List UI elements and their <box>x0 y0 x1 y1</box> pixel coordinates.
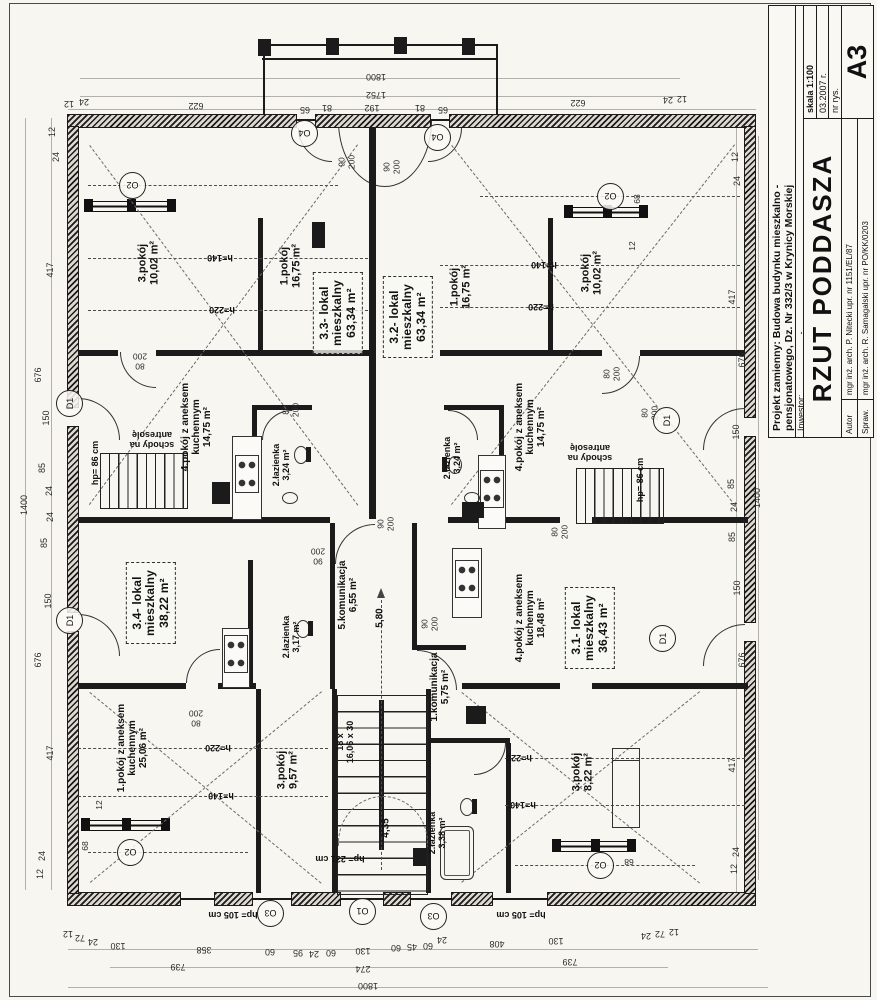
wall-segment <box>256 689 261 893</box>
dim-label: 676 <box>737 352 747 367</box>
window-marker-O2: O2 <box>597 183 624 210</box>
stair-direction-arrow <box>377 588 385 598</box>
room-label: 3.pokój 10,02 m² <box>580 251 605 295</box>
height-note: h=140 <box>510 800 536 810</box>
dim-label: 150 <box>732 580 742 595</box>
wall-segment <box>369 127 376 519</box>
sill-note: hp= 231 cm <box>315 854 364 864</box>
dim-label: 24 <box>437 935 447 945</box>
height-note: h=220 <box>209 305 235 315</box>
door-marker-D1: D1 <box>653 407 680 434</box>
dim-label: 676 <box>33 652 43 667</box>
wall-segment <box>78 350 118 356</box>
dim-label: 85 <box>39 538 49 548</box>
window-cap <box>81 818 90 831</box>
vent-stack <box>212 482 230 504</box>
drawing-meta: skala 1:100 03.2007 r. nr rys. <box>804 6 841 118</box>
room-label: 2.łazienka 3,24 m² <box>271 444 291 487</box>
dim-label: 417 <box>727 757 737 772</box>
dim-label: 85 <box>727 532 737 542</box>
hatched-wall <box>68 632 78 893</box>
window-marker-O4: O4 <box>424 124 451 151</box>
checker-row: Spraw. mgr inż. arch. R. Samagalski upr.… <box>858 119 873 437</box>
dashed-line <box>78 796 328 797</box>
window-cap <box>167 199 176 212</box>
drawing-element: Projekt zamienny: Budowa budynku mieszka… <box>771 12 783 431</box>
dim-label: 1800 <box>366 72 386 82</box>
sill-note: hp= 86 cm <box>90 441 100 485</box>
dim-label: 622 <box>570 98 585 108</box>
height-note: h=220 <box>205 743 231 753</box>
dim-label: 1800 <box>358 981 378 991</box>
door-swing-arc <box>335 524 375 564</box>
hatched-wall <box>68 115 296 127</box>
dim-label: 12 <box>729 864 739 874</box>
dim-label: 739 <box>562 957 577 967</box>
drawing-element: pensjonatowego, Dz. Nr 332/3 w Krynicy M… <box>783 12 795 431</box>
bed-icon <box>612 748 640 828</box>
dim-label: 12 <box>64 99 74 109</box>
room-label: 1.pokój 16,75 m² <box>449 265 474 309</box>
dim-label: 81 <box>322 103 332 113</box>
dim-label: 274 <box>355 964 370 974</box>
dim-label: 24 <box>88 937 98 947</box>
cooktop-icon <box>455 560 479 598</box>
wall-segment <box>394 37 407 54</box>
door-size: 80 200 <box>602 367 621 381</box>
door-swing-arc <box>78 614 120 656</box>
apt-3-1-label: 3.1- lokal mieszkalny 36,43 m² <box>565 587 615 669</box>
date-label: 03.2007 r. <box>817 6 830 118</box>
credits-row: Autor mgr inż. arch. P. Nitecki upr. nr … <box>842 6 873 437</box>
author-row: Autor mgr inż. arch. P. Nitecki upr. nr … <box>842 119 858 437</box>
dimension-line <box>68 987 768 988</box>
scale-label: skala 1:100 <box>804 6 817 118</box>
dim-label: 24 <box>45 512 55 522</box>
window-cap <box>627 839 636 852</box>
window-marker-O3: O3 <box>420 903 447 930</box>
dim-label: 24 <box>309 949 319 959</box>
stair-note: 18 x 16,06 x 30 <box>335 721 355 764</box>
door-size: 90 200 <box>420 617 439 631</box>
dim-label: 68 <box>81 841 91 850</box>
mezzanine-stairs-label: schody na antresolę <box>568 443 613 463</box>
project-description: Projekt zamienny: Budowa budynku mieszka… <box>769 6 795 437</box>
door-marker-D1: D1 <box>56 390 83 417</box>
hatched-wall <box>68 893 180 905</box>
dim-label: 417 <box>45 262 55 277</box>
room-label: 1.komunikacja 5,75 m² <box>429 653 451 722</box>
wall-segment <box>258 218 263 350</box>
sill-note: hp= 105 cm <box>208 910 257 920</box>
dim-label: 24 <box>663 95 673 105</box>
dim-label: 130 <box>110 941 125 951</box>
cooktop-icon <box>224 635 248 673</box>
hatched-wall <box>452 893 492 905</box>
apt-3-3-label: 3.3- lokal mieszkalny 63,34 m² <box>313 272 363 354</box>
drawing-number-label: nr rys. <box>829 6 841 118</box>
wall-segment <box>78 517 330 523</box>
title-block: Projekt zamienny: Budowa budynku mieszka… <box>768 5 874 438</box>
dim-label: 60 <box>326 948 336 958</box>
height-note: h=220 <box>528 302 554 312</box>
hatched-wall <box>292 893 340 905</box>
dim-label: 358 <box>196 945 211 955</box>
dimension-line <box>51 118 52 890</box>
dim-label: 676 <box>737 652 747 667</box>
window-cap <box>122 818 131 831</box>
dim-label: 150 <box>731 424 741 439</box>
dim-label: 12 <box>95 800 105 809</box>
wall-segment <box>472 799 477 814</box>
title-row: RZUT PODDASZA skala 1:100 03.2007 r. nr … <box>804 6 842 437</box>
hatched-wall <box>68 127 78 407</box>
line <box>262 58 498 60</box>
dim-label: 12 <box>669 927 679 937</box>
dim-label: 130 <box>355 946 370 956</box>
dim-label: 12 <box>730 152 740 162</box>
door-swing-arc <box>186 649 220 683</box>
vent-stack <box>466 706 486 724</box>
dim-label: 85 <box>726 479 736 489</box>
door-swing-arc <box>78 398 120 440</box>
hatched-wall <box>215 893 252 905</box>
sill-note: hp= 86 cm <box>635 458 645 502</box>
dim-label: 150 <box>41 410 51 425</box>
window-cap <box>564 205 573 218</box>
dim-label: 24 <box>731 847 741 857</box>
window-marker-O2: O2 <box>119 172 146 199</box>
dim-label: 1752 <box>366 90 386 100</box>
height-note: h=140 <box>208 791 234 801</box>
height-note: h=220 <box>506 753 532 763</box>
door-size: 90 200 <box>337 155 356 169</box>
mezzanine-stairs-label: schody na antresolę <box>130 430 175 450</box>
cooktop-icon <box>235 455 259 493</box>
window-marker-O2: O2 <box>117 839 144 866</box>
wall-segment <box>78 683 186 689</box>
wall-segment <box>330 523 335 689</box>
hatched-wall <box>450 115 755 127</box>
dim-label: 739 <box>170 962 185 972</box>
window-cap <box>552 839 561 852</box>
hatched-wall <box>745 642 755 893</box>
window-marker-O4: O4 <box>291 120 318 147</box>
author-label: Autor <box>842 399 857 437</box>
vent-stack <box>312 222 325 248</box>
dim-note: 4,35 <box>380 818 391 837</box>
door-marker-D1: D1 <box>56 607 83 634</box>
mezzanine-stairs <box>576 468 664 524</box>
drawing-title: RZUT PODDASZA <box>804 118 841 437</box>
wall-segment <box>440 350 602 356</box>
wall-segment <box>462 683 560 689</box>
room-label: 2.łazienka 3,38 m² <box>427 812 447 855</box>
dim-label: 81 <box>415 103 425 113</box>
wall-segment <box>462 38 475 55</box>
dim-label: 130 <box>548 936 563 946</box>
dim-label: 417 <box>727 289 737 304</box>
dim-label: 24 <box>51 152 61 162</box>
dim-label: 45 <box>407 942 417 952</box>
washbasin-icon <box>282 492 298 504</box>
apt-3-2-label: 3.2- lokal mieszkalny 63,34 m² <box>383 276 433 358</box>
apt-3-4-label: 3.4- lokal mieszkalny 38,22 m² <box>126 562 176 644</box>
dim-label: 676 <box>33 367 43 382</box>
wall-segment <box>592 683 748 689</box>
hatched-wall <box>316 115 430 127</box>
window-cap <box>591 839 600 852</box>
mezzanine-stairs <box>100 453 188 509</box>
wall-segment <box>308 621 313 636</box>
dim-label: 65 <box>300 105 310 115</box>
line <box>410 898 452 900</box>
dim-label: 24 <box>37 851 47 861</box>
vent-stack <box>413 848 426 866</box>
room-label: 1.pokój 16,75 m² <box>279 244 304 288</box>
dim-label: 150 <box>43 593 53 608</box>
sill-note: hp= 105 cm <box>496 910 545 920</box>
room-label: 3.pokój 8,22 m² <box>571 753 596 792</box>
dim-label: 12 <box>63 929 73 939</box>
window-marker-O2: O2 <box>587 852 614 879</box>
dim-label: 60 <box>391 943 401 953</box>
dim-note: 5,80 <box>374 608 385 627</box>
wall-segment <box>258 39 271 56</box>
room-label: 2.łazienka 3,24 m² <box>442 437 462 480</box>
hatched-wall <box>548 893 755 905</box>
window-cap <box>639 205 648 218</box>
room-label: 4.pokój z aneksem kuchennym 14,75 m² <box>180 383 214 471</box>
credits: Autor mgr inż. arch. P. Nitecki upr. nr … <box>842 118 873 437</box>
wall-segment <box>412 523 417 645</box>
vent-stack <box>462 502 484 518</box>
door-size: 90 200 <box>311 546 325 565</box>
door-size: 90 200 <box>376 517 395 531</box>
window-marker-O3: O3 <box>257 900 284 927</box>
sheet-format: A3 <box>842 6 873 118</box>
height-note: h=140 <box>207 253 233 263</box>
dim-label: 417 <box>45 745 55 760</box>
dashed-line <box>440 307 740 308</box>
dim-label: 24 <box>729 502 739 512</box>
window-marker-O1: O1 <box>349 898 376 925</box>
wall-segment <box>306 447 311 462</box>
dim-label: 68 <box>633 194 643 203</box>
room-label: 2.łazienka 3,17 m² <box>281 616 301 659</box>
door-size: 80 200 <box>189 708 203 727</box>
dim-label: 24 <box>641 931 651 941</box>
line <box>492 898 548 900</box>
room-label: 3.pokój 10,02 m² <box>137 241 162 285</box>
dim-label: 24 <box>79 97 89 107</box>
hatched-wall <box>68 427 78 612</box>
checker-name: mgr inż. arch. R. Samagalski upr. nr PO/… <box>861 221 870 399</box>
dim-label: 72 <box>655 929 665 939</box>
room-label: 3.pokój 9,57 m² <box>276 751 301 790</box>
dim-label: 1400 <box>752 488 762 508</box>
dim-label: 12 <box>677 94 687 104</box>
dim-label: 95 <box>293 948 303 958</box>
room-label: 4.pokój z aneksem kuchennym 14,75 m² <box>514 383 548 471</box>
room-label: 1.pokój z aneksem kuchennym 25,06 m² <box>116 704 150 792</box>
dimension-line <box>68 109 756 110</box>
checker-label: Spraw. <box>858 399 873 437</box>
line <box>430 119 450 121</box>
dim-label: 12 <box>628 241 638 250</box>
scan-sheet: 3.3- lokal mieszkalny 63,34 m²3.2- lokal… <box>0 0 877 1000</box>
dim-label: 68 <box>624 856 633 866</box>
dimension-line <box>110 967 668 968</box>
wall-segment <box>444 405 504 410</box>
dim-label: 85 <box>37 463 47 473</box>
dim-label: 622 <box>188 101 203 111</box>
line <box>180 898 215 900</box>
room-label: 5.komunikacja 6,55 m² <box>337 561 359 630</box>
door-marker-D1: D1 <box>649 625 676 652</box>
dashed-line <box>88 852 248 853</box>
wall-segment <box>548 218 553 350</box>
height-note: h=140 <box>531 260 557 270</box>
hatched-wall <box>745 127 755 417</box>
door-size: 80 200 <box>133 351 147 370</box>
project-row: Projekt zamienny: Budowa budynku mieszka… <box>769 6 804 437</box>
door-size: 80 200 <box>281 403 300 417</box>
door-size: 80 200 <box>550 525 569 539</box>
dim-label: 192 <box>364 103 379 113</box>
door-swing-arc <box>448 410 478 440</box>
dim-label: 60 <box>265 947 275 957</box>
dim-label: 24 <box>732 176 742 186</box>
dim-label: 24 <box>44 486 54 496</box>
dim-label: 72 <box>75 933 85 943</box>
author-name: mgr inż. arch. P. Nitecki upr. nr 1151/E… <box>845 244 854 399</box>
hatched-wall <box>745 437 755 622</box>
line <box>496 44 498 115</box>
dim-label: 408 <box>489 939 504 949</box>
wall-segment <box>640 350 745 356</box>
dim-label: 65 <box>438 105 448 115</box>
dim-label: 1400 <box>19 495 29 515</box>
dim-label: 60 <box>423 941 433 951</box>
door-size: 90 200 <box>382 160 401 174</box>
wall-segment <box>506 743 511 893</box>
wall-segment <box>326 38 339 55</box>
floor-plan: 3.3- lokal mieszkalny 63,34 m²3.2- lokal… <box>0 0 877 1000</box>
door-swing-arc <box>474 743 506 775</box>
dim-label: 12 <box>47 127 57 137</box>
dim-label: 12 <box>35 869 45 879</box>
window-cap <box>84 199 93 212</box>
room-label: 4.pokój z aneksem kuchennym 18,48 m² <box>514 574 548 662</box>
